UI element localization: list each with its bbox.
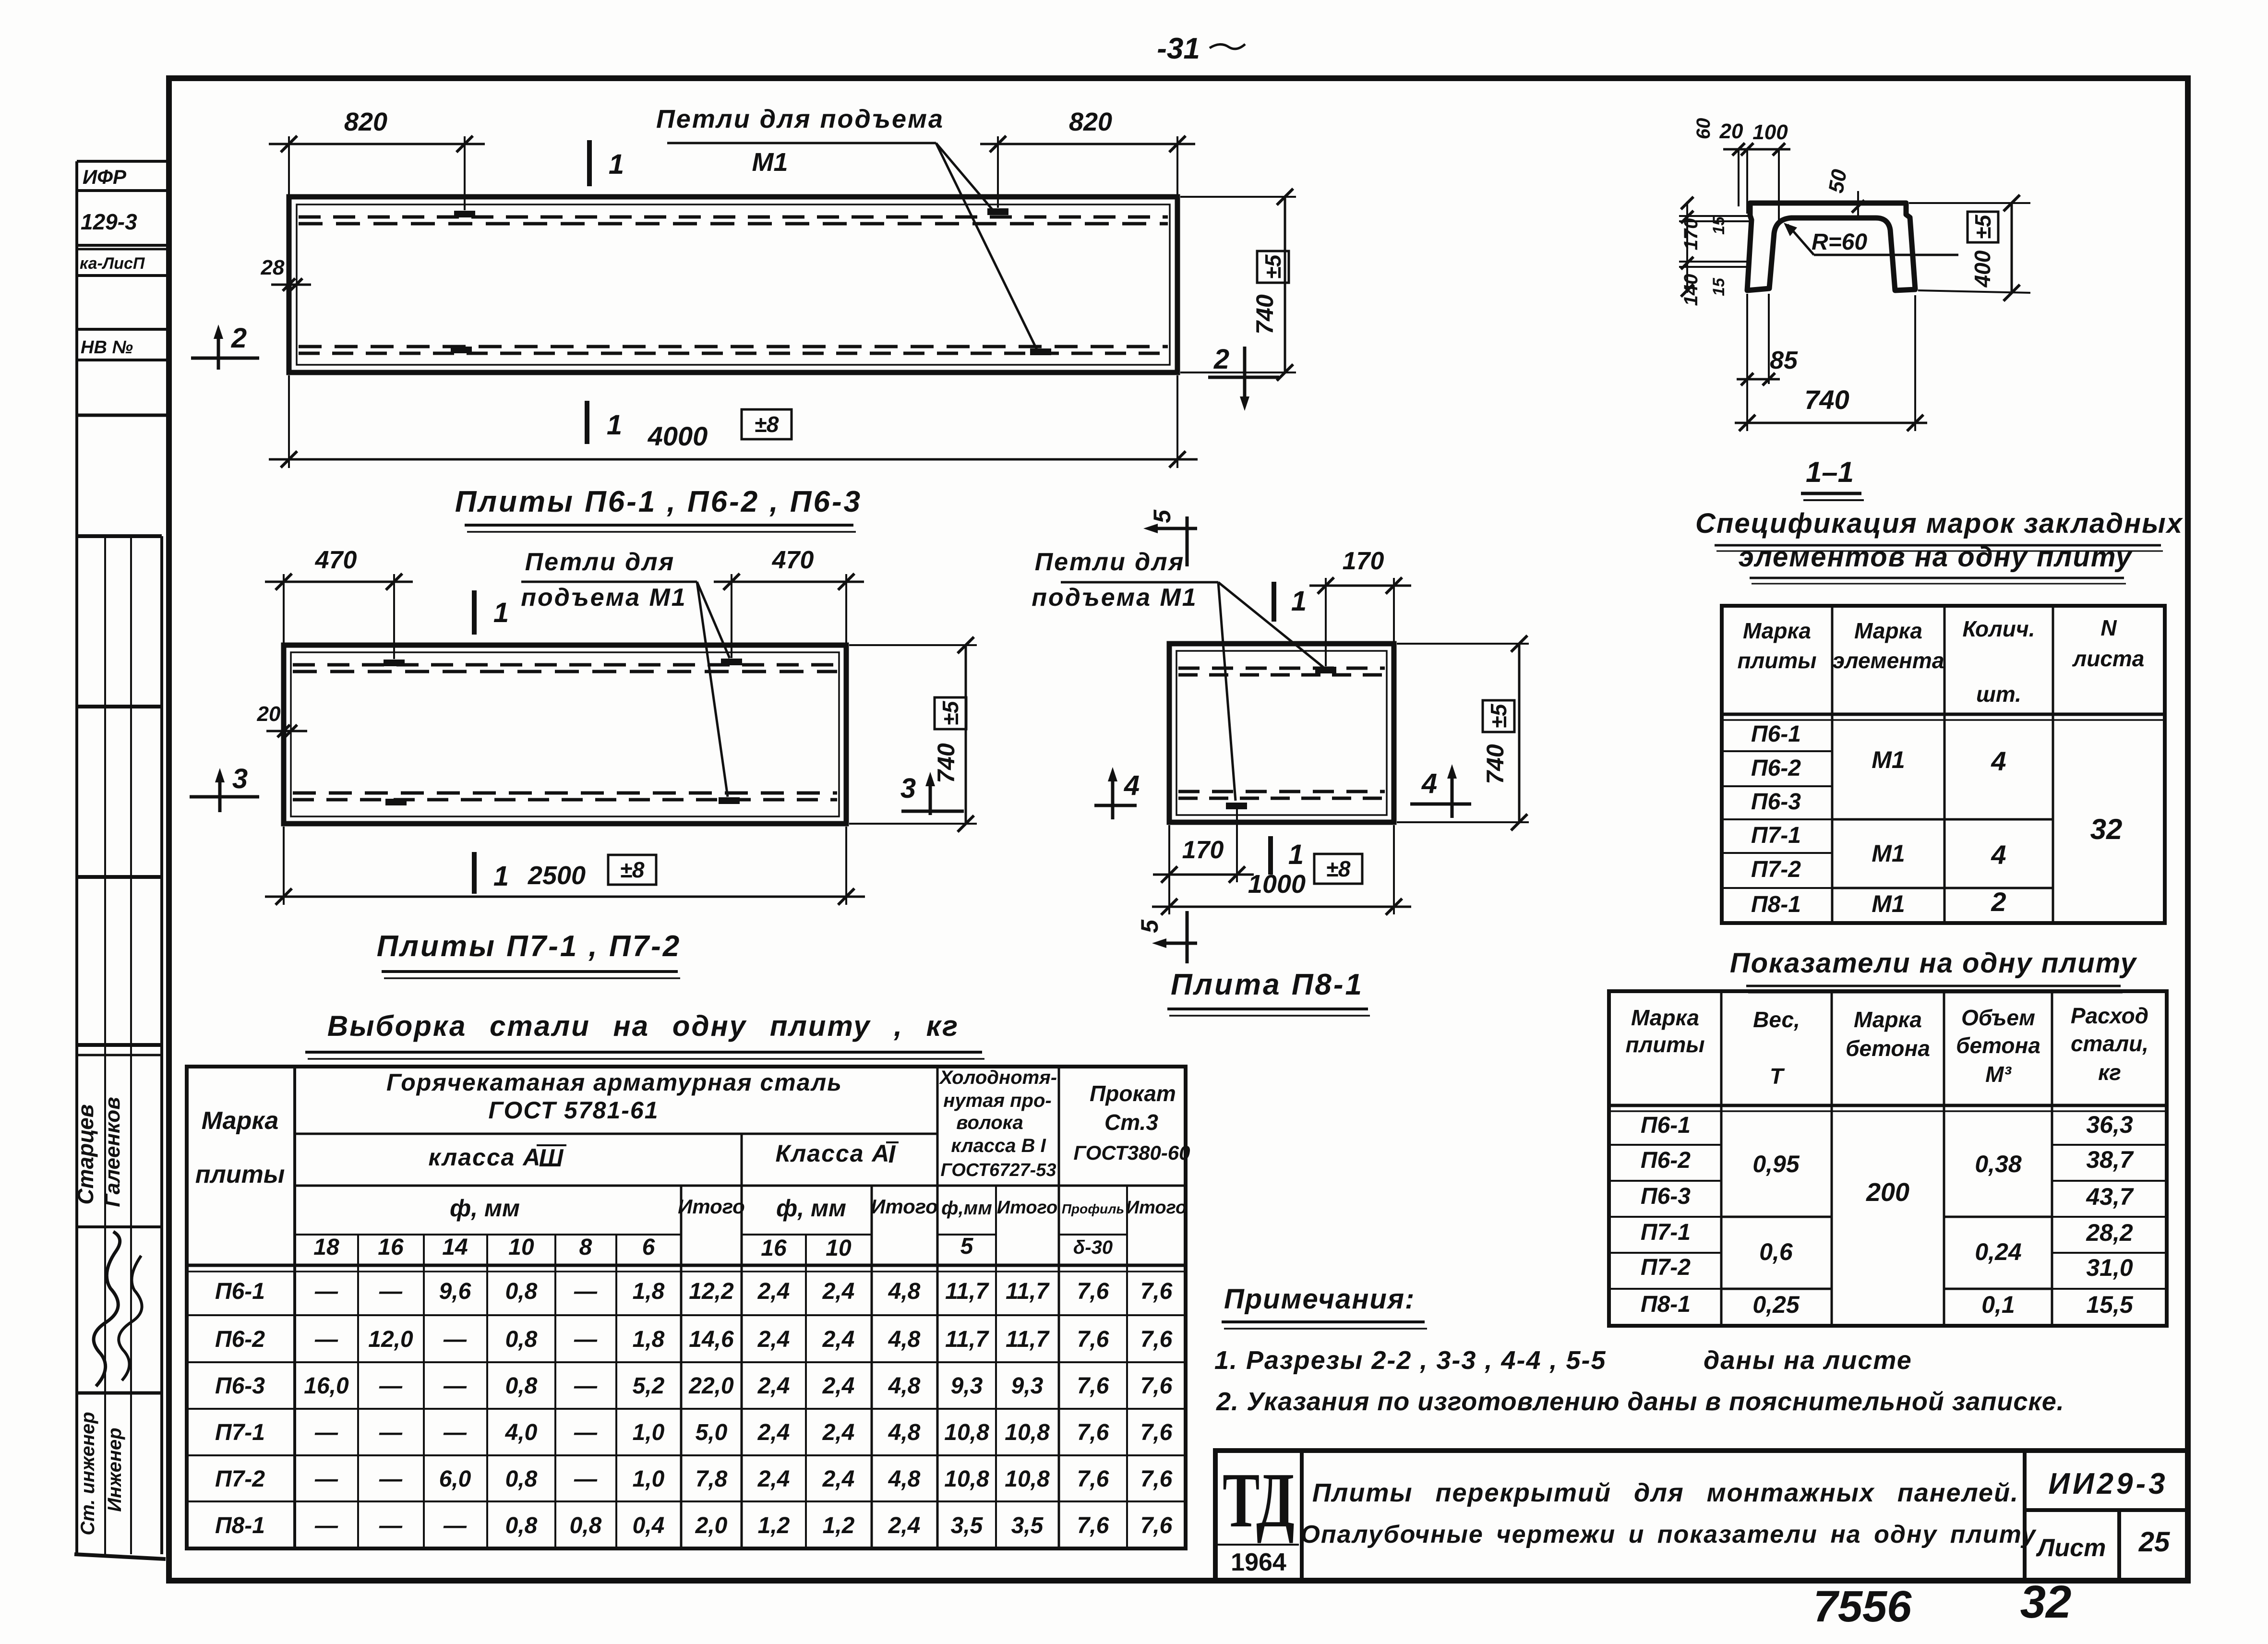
svg-text:±8: ±8 [620, 857, 645, 882]
svg-text:9,6: 9,6 [439, 1279, 471, 1304]
svg-text:15: 15 [1710, 216, 1728, 235]
svg-text:2: 2 [231, 323, 247, 354]
svg-text:7,6: 7,6 [1077, 1466, 1109, 1492]
svg-text:Горячекатаная арматурная: Горячекатаная арматурная сталь [386, 1069, 842, 1096]
svg-text:25: 25 [2138, 1526, 2170, 1558]
svg-text:4: 4 [1421, 768, 1437, 799]
svg-text:Марка: Марка [1743, 618, 1811, 643]
svg-text:11,7: 11,7 [1006, 1279, 1050, 1304]
svg-text:6,0: 6,0 [439, 1466, 471, 1492]
svg-text:Петли для подъема: Петли для подъема [656, 105, 944, 133]
svg-text:—: — [574, 1420, 598, 1445]
svg-text:15,5: 15,5 [2086, 1291, 2134, 1318]
svg-text:3: 3 [232, 763, 248, 794]
svg-text:5: 5 [1136, 919, 1163, 933]
svg-text:шт.: шт. [1976, 682, 2021, 707]
svg-text:1: 1 [1288, 839, 1304, 870]
svg-text:Марка: Марка [1854, 618, 1922, 643]
svg-text:9,3: 9,3 [1011, 1373, 1044, 1399]
svg-text:1: 1 [493, 597, 509, 628]
svg-text:4,8: 4,8 [888, 1466, 921, 1492]
svg-text:П8-1: П8-1 [215, 1513, 265, 1538]
svg-text:60: 60 [1693, 118, 1714, 140]
svg-text:—: — [379, 1466, 403, 1492]
svg-text:4,8: 4,8 [888, 1373, 921, 1399]
svg-text:2500: 2500 [528, 861, 586, 890]
svg-text:32: 32 [2090, 813, 2123, 845]
svg-text:740: 740 [933, 743, 960, 783]
svg-text:28,2: 28,2 [2086, 1219, 2133, 1246]
svg-text:нутая про-: нутая про- [943, 1090, 1052, 1111]
svg-text:М³: М³ [1985, 1062, 2012, 1087]
svg-text:бетона: бетона [1956, 1033, 2040, 1058]
svg-text:листа: листа [2072, 646, 2145, 671]
svg-text:М1: М1 [752, 148, 788, 177]
svg-text:П8-1: П8-1 [1641, 1292, 1691, 1317]
svg-text:28: 28 [261, 256, 285, 279]
svg-text:129-3: 129-3 [81, 209, 137, 234]
svg-text:Лист: Лист [2036, 1534, 2106, 1562]
svg-text:П7-2: П7-2 [1641, 1255, 1691, 1280]
svg-text:4,8: 4,8 [888, 1420, 921, 1445]
svg-text:М1: М1 [1872, 746, 1905, 773]
svg-text:0,8: 0,8 [505, 1327, 538, 1352]
svg-text:38,7: 38,7 [2086, 1146, 2134, 1173]
svg-text:Плиты П7-1 , П7-2: Плиты П7-1 , П7-2 [377, 930, 681, 963]
svg-text:—: — [443, 1327, 467, 1352]
svg-text:—: — [314, 1466, 338, 1492]
svg-text:—: — [379, 1420, 403, 1445]
svg-text:П6-1: П6-1 [215, 1279, 265, 1304]
svg-text:0,6: 0,6 [1759, 1238, 1793, 1265]
svg-text:Итого: Итого [997, 1198, 1057, 1218]
svg-text:ф, мм: ф, мм [776, 1195, 846, 1222]
svg-text:1: 1 [609, 149, 624, 180]
svg-text:740: 740 [1482, 744, 1509, 784]
svg-text:—: — [574, 1279, 598, 1304]
svg-text:Опалубочные чертежи и показате: Опалубочные чертежи и показатели на одну… [1300, 1521, 2037, 1548]
svg-text:2,4: 2,4 [822, 1327, 855, 1352]
svg-text:П6-3: П6-3 [1641, 1184, 1691, 1209]
svg-text:0,8: 0,8 [505, 1279, 538, 1304]
svg-text:Петли для: Петли для [525, 548, 675, 576]
svg-text:1,2: 1,2 [823, 1513, 855, 1538]
svg-text:ф,мм: ф,мм [941, 1198, 992, 1219]
svg-text:16,0: 16,0 [304, 1373, 349, 1399]
svg-text:36,3: 36,3 [2086, 1111, 2133, 1138]
svg-text:ГОСТ 5781-61: ГОСТ 5781-61 [488, 1097, 659, 1124]
svg-text:R=60: R=60 [1812, 229, 1867, 255]
svg-text:плиты: плиты [1738, 648, 1817, 673]
svg-text:1,2: 1,2 [758, 1513, 790, 1538]
svg-text:волока: волока [956, 1112, 1023, 1133]
svg-text:1,0: 1,0 [633, 1466, 665, 1492]
svg-text:3: 3 [900, 773, 916, 804]
svg-text:±5: ±5 [1486, 703, 1511, 728]
svg-text:15: 15 [1710, 277, 1728, 296]
svg-text:43,7: 43,7 [2086, 1183, 2134, 1210]
svg-text:10: 10 [508, 1235, 534, 1260]
svg-text:7,6: 7,6 [1077, 1513, 1109, 1538]
svg-text:Расход: Расход [2071, 1003, 2148, 1028]
svg-text:8: 8 [579, 1235, 592, 1260]
svg-text:0,25: 0,25 [1752, 1291, 1800, 1318]
svg-text:П7-1: П7-1 [1751, 823, 1801, 848]
svg-text:δ-30: δ-30 [1073, 1237, 1113, 1258]
svg-text:85: 85 [1770, 347, 1798, 374]
svg-text:М1: М1 [1872, 890, 1905, 917]
svg-text:3,5: 3,5 [951, 1513, 984, 1538]
svg-text:18: 18 [313, 1235, 339, 1260]
svg-text:—: — [443, 1373, 467, 1399]
svg-text:1,8: 1,8 [633, 1327, 665, 1352]
svg-text:±5: ±5 [938, 700, 963, 725]
svg-text:400: 400 [1970, 250, 1995, 288]
svg-text:Объем: Объем [1961, 1005, 2035, 1030]
svg-text:20: 20 [257, 702, 281, 726]
svg-text:Прокат: Прокат [1090, 1081, 1176, 1106]
svg-text:11,7: 11,7 [945, 1327, 989, 1352]
svg-text:5: 5 [1149, 509, 1176, 523]
svg-text:5,2: 5,2 [633, 1373, 665, 1399]
svg-text:1000: 1000 [1248, 870, 1306, 899]
svg-text:П6-2: П6-2 [1641, 1148, 1691, 1173]
svg-text:±8: ±8 [1326, 856, 1351, 881]
svg-text:—: — [443, 1420, 467, 1445]
svg-text:плиты: плиты [1626, 1032, 1705, 1057]
svg-text:П6-1: П6-1 [1641, 1113, 1691, 1138]
svg-text:подъема М1: подъема М1 [521, 584, 686, 612]
svg-text:Плита П8-1: Плита П8-1 [1171, 968, 1364, 1001]
svg-text:Ст.3: Ст.3 [1104, 1110, 1158, 1135]
svg-text:П7-2: П7-2 [215, 1466, 265, 1492]
svg-text:7,6: 7,6 [1077, 1373, 1109, 1399]
svg-text:7,6: 7,6 [1140, 1279, 1173, 1304]
svg-text:4: 4 [1124, 770, 1140, 801]
svg-text:П6-1: П6-1 [1751, 721, 1801, 747]
svg-text:—: — [314, 1513, 338, 1538]
svg-text:плиты: плиты [195, 1161, 285, 1188]
svg-text:—: — [379, 1279, 403, 1304]
svg-text:4: 4 [1991, 746, 2006, 776]
svg-text:П6-3: П6-3 [1751, 789, 1801, 815]
svg-text:I: I [888, 1140, 896, 1168]
svg-text:2,4: 2,4 [757, 1373, 790, 1399]
svg-text:—: — [574, 1327, 598, 1352]
svg-text:7,6: 7,6 [1140, 1373, 1173, 1399]
svg-text:—: — [379, 1513, 403, 1538]
svg-text:4: 4 [1991, 840, 2006, 870]
svg-text:ИФР: ИФР [83, 166, 127, 188]
svg-text:50: 50 [1824, 168, 1851, 195]
svg-text:740: 740 [1251, 294, 1278, 335]
svg-text:0,8: 0,8 [505, 1373, 538, 1399]
svg-text:2,4: 2,4 [757, 1327, 790, 1352]
svg-text:7,6: 7,6 [1077, 1327, 1109, 1352]
svg-text:элемента: элемента [1833, 648, 1944, 673]
svg-text:2,0: 2,0 [695, 1513, 728, 1538]
svg-text:—: — [314, 1420, 338, 1445]
svg-text:0,95: 0,95 [1752, 1151, 1800, 1177]
svg-text:170: 170 [1343, 547, 1384, 575]
svg-text:НВ №: НВ № [81, 337, 133, 358]
svg-text:0,1: 0,1 [1981, 1291, 2015, 1318]
svg-text:820: 820 [1069, 108, 1112, 136]
svg-text:2,4: 2,4 [822, 1420, 855, 1445]
svg-text:4000: 4000 [648, 421, 708, 451]
svg-text:класса В I: класса В I [951, 1135, 1046, 1156]
svg-text:7,6: 7,6 [1077, 1420, 1109, 1445]
svg-text:ТД: ТД [1223, 1457, 1295, 1544]
svg-text:0,24: 0,24 [1975, 1238, 2021, 1265]
svg-text:2: 2 [1213, 344, 1229, 375]
svg-text:П6-3: П6-3 [215, 1373, 265, 1399]
svg-text:Марка: Марка [1631, 1005, 1699, 1030]
svg-text:10,8: 10,8 [1005, 1420, 1050, 1445]
svg-text:7,6: 7,6 [1077, 1279, 1109, 1304]
svg-text:П6-2: П6-2 [1751, 756, 1801, 781]
svg-text:Профиль: Профиль [1062, 1201, 1124, 1216]
svg-text:3,5: 3,5 [1011, 1513, 1044, 1538]
svg-text:ГОСТ380-60: ГОСТ380-60 [1073, 1141, 1190, 1164]
svg-text:10: 10 [826, 1236, 852, 1261]
svg-text:200: 200 [1866, 1178, 1909, 1207]
svg-text:Ст. инженер: Ст. инженер [77, 1412, 98, 1535]
svg-text:—: — [574, 1373, 598, 1399]
svg-text:1,8: 1,8 [633, 1279, 665, 1304]
svg-text:подъема М1: подъема М1 [1032, 584, 1197, 612]
svg-text:Марка: Марка [202, 1107, 279, 1135]
svg-text:4,8: 4,8 [888, 1327, 921, 1352]
svg-text:7,8: 7,8 [696, 1466, 728, 1492]
svg-text:Показатели на одну плиту: Показатели на одну плиту [1730, 948, 2137, 979]
svg-text:-31: -31 [1157, 32, 1200, 65]
svg-text:Итого: Итого [871, 1195, 938, 1218]
svg-text:кг: кг [2098, 1060, 2121, 1085]
svg-text:1: 1 [607, 409, 622, 441]
svg-text:14: 14 [442, 1235, 468, 1260]
svg-text:Выборка стали на одну плит: Выборка стали на одну плиту , кг [327, 1010, 959, 1042]
svg-text:—: — [314, 1279, 338, 1304]
svg-text:2,4: 2,4 [822, 1466, 855, 1492]
svg-text:даны на листе: даны на листе [1704, 1346, 1912, 1375]
svg-text:0,8: 0,8 [505, 1513, 538, 1538]
svg-text:—: — [443, 1513, 467, 1538]
svg-text:2,4: 2,4 [888, 1513, 921, 1538]
svg-text:П6-2: П6-2 [215, 1327, 265, 1352]
svg-text:0,8: 0,8 [570, 1513, 602, 1538]
svg-text:2,4: 2,4 [822, 1373, 855, 1399]
svg-text:Галеенков: Галеенков [101, 1097, 124, 1207]
svg-text:0,38: 0,38 [1975, 1151, 2022, 1177]
svg-text:10,8: 10,8 [944, 1466, 989, 1492]
svg-text:7,6: 7,6 [1140, 1466, 1173, 1492]
svg-text:Т: Т [1770, 1064, 1785, 1089]
svg-text:Примечания:: Примечания: [1224, 1284, 1415, 1315]
svg-text:7,6: 7,6 [1140, 1420, 1173, 1445]
svg-text:ИИ29-3: ИИ29-3 [2048, 1467, 2168, 1500]
svg-text:стали,: стали, [2071, 1031, 2148, 1056]
svg-text:N: N [2100, 615, 2117, 640]
svg-text:ГОСТ6727-53: ГОСТ6727-53 [940, 1160, 1056, 1180]
svg-text:Холоднотя-: Холоднотя- [939, 1067, 1057, 1088]
svg-text:9,3: 9,3 [951, 1373, 983, 1399]
svg-text:170: 170 [1182, 836, 1224, 864]
svg-text:±5: ±5 [1260, 254, 1285, 279]
svg-text:Ш: Ш [539, 1144, 564, 1172]
svg-text:740: 740 [1804, 384, 1849, 415]
svg-text:бетона: бетона [1846, 1036, 1930, 1061]
svg-text:0,4: 0,4 [633, 1513, 665, 1538]
svg-text:14,6: 14,6 [689, 1327, 734, 1352]
svg-text:Петли для: Петли для [1035, 548, 1185, 576]
svg-text:Инженер: Инженер [104, 1428, 125, 1512]
svg-text:6: 6 [642, 1235, 655, 1260]
svg-text:Плиты П6-1 , П6-2 , П6-3: Плиты П6-1 , П6-2 , П6-3 [455, 485, 862, 518]
svg-text:7,6: 7,6 [1140, 1327, 1173, 1352]
svg-text:ф, мм: ф, мм [450, 1195, 520, 1222]
svg-text:22,0: 22,0 [688, 1373, 734, 1399]
svg-text:П7-1: П7-1 [215, 1420, 265, 1445]
svg-text:2: 2 [1991, 887, 2006, 917]
svg-text:0,8: 0,8 [505, 1466, 538, 1492]
svg-text:Вес,: Вес, [1753, 1007, 1800, 1032]
svg-text:элементов на одну плиту: элементов на одну плиту [1739, 541, 2133, 573]
svg-text:32: 32 [2020, 1576, 2072, 1628]
svg-text:1. Разрезы 2-2 , 3-3 , 4-4 ,: 1. Разрезы 2-2 , 3-3 , 4-4 , 5-5 [1214, 1346, 1607, 1375]
svg-text:140: 140 [1680, 274, 1702, 306]
svg-text:470: 470 [772, 546, 814, 574]
svg-text:М1: М1 [1872, 840, 1905, 867]
svg-text:11,7: 11,7 [945, 1279, 989, 1304]
svg-text:2,4: 2,4 [757, 1279, 790, 1304]
svg-text:820: 820 [344, 108, 387, 136]
svg-text:31,0: 31,0 [2086, 1254, 2133, 1281]
svg-text:100: 100 [1752, 120, 1788, 144]
svg-text:12,2: 12,2 [689, 1279, 734, 1304]
svg-text:16: 16 [378, 1235, 404, 1260]
svg-text:2,4: 2,4 [822, 1279, 855, 1304]
svg-text:Старцев: Старцев [73, 1104, 98, 1204]
svg-text:2. Указания по изготовлению: 2. Указания по изготовлению даны в поясн… [1216, 1387, 2064, 1416]
svg-text:7,6: 7,6 [1140, 1513, 1173, 1538]
svg-text:2,4: 2,4 [757, 1420, 790, 1445]
svg-text:16: 16 [761, 1236, 787, 1261]
svg-text:7556: 7556 [1813, 1582, 1912, 1631]
svg-text:—: — [574, 1466, 598, 1492]
svg-text:—: — [314, 1327, 338, 1352]
svg-text:5: 5 [960, 1234, 974, 1259]
svg-text:ка-ЛисП: ка-ЛисП [80, 254, 145, 273]
svg-text:5,0: 5,0 [696, 1420, 728, 1445]
svg-text:±5: ±5 [1970, 214, 1995, 239]
svg-text:Плиты перекрытий для монтажных: Плиты перекрытий для монтажных панелей. [1312, 1478, 2019, 1507]
svg-text:Итого: Итого [1126, 1198, 1187, 1218]
svg-text:Спецификация марок закладных: Спецификация марок закладных [1695, 508, 2184, 539]
svg-text:—: — [379, 1373, 403, 1399]
svg-text:Колич.: Колич. [1963, 616, 2035, 641]
svg-text:10,8: 10,8 [944, 1420, 989, 1445]
svg-text:12,0: 12,0 [368, 1327, 413, 1352]
svg-text:1: 1 [1291, 586, 1307, 617]
svg-text:П7-2: П7-2 [1751, 857, 1801, 882]
svg-text:170: 170 [1680, 218, 1702, 251]
svg-text:П7-1: П7-1 [1641, 1220, 1691, 1245]
svg-text:4,8: 4,8 [888, 1279, 921, 1304]
svg-text:Итого: Итого [678, 1195, 745, 1218]
svg-text:11,7: 11,7 [1006, 1327, 1050, 1352]
svg-text:1,0: 1,0 [633, 1420, 665, 1445]
svg-text:1: 1 [493, 861, 509, 892]
svg-text:10,8: 10,8 [1005, 1466, 1050, 1492]
svg-text:±8: ±8 [755, 412, 779, 437]
svg-text:4,0: 4,0 [505, 1420, 538, 1445]
svg-text:П8-1: П8-1 [1751, 892, 1801, 917]
svg-text:1964: 1964 [1231, 1548, 1286, 1576]
svg-text:1–1: 1–1 [1806, 456, 1854, 488]
svg-text:Класса А: Класса А [775, 1140, 890, 1167]
svg-text:класса А: класса А [429, 1144, 541, 1171]
svg-text:20: 20 [1719, 120, 1743, 143]
svg-text:Марка: Марка [1854, 1007, 1922, 1032]
svg-text:2,4: 2,4 [757, 1466, 790, 1492]
svg-text:470: 470 [315, 546, 357, 574]
